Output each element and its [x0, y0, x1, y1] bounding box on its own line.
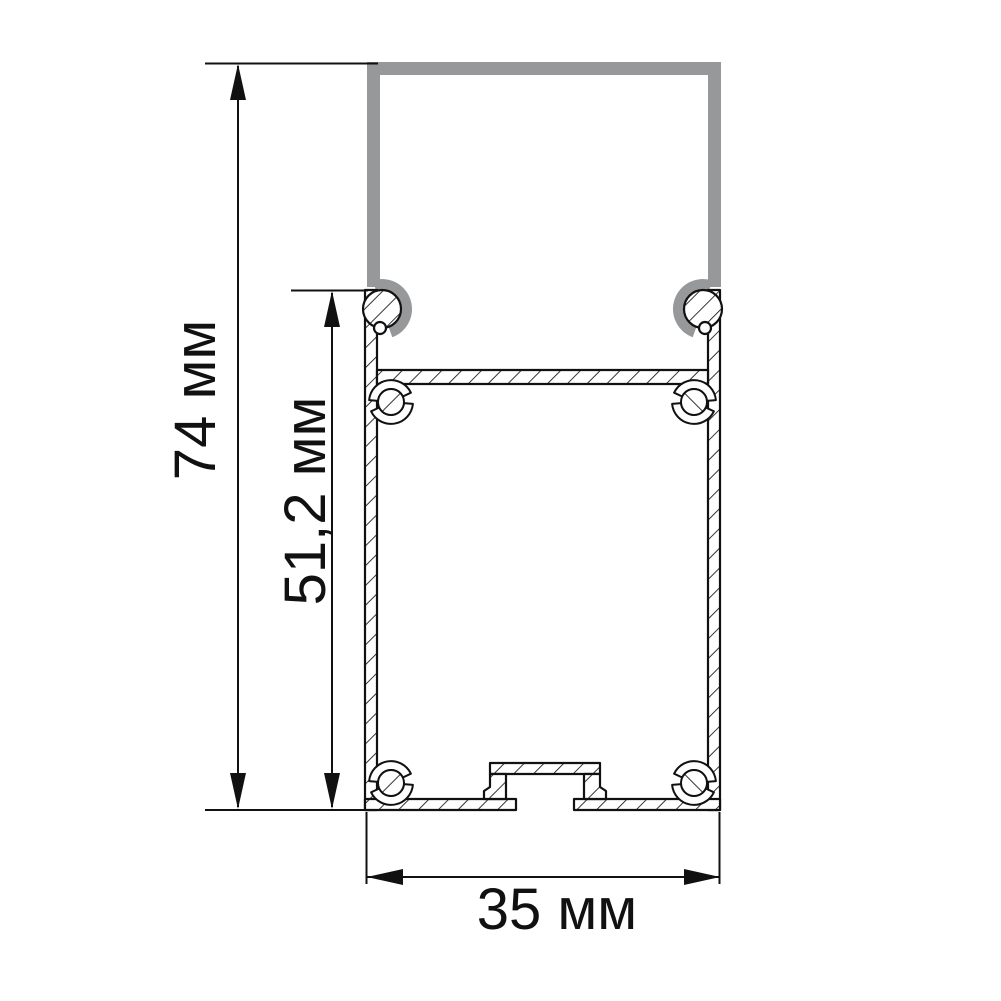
- screw-ports: [369, 380, 716, 805]
- clip-bead-right: [699, 322, 711, 334]
- arrow-down-512: [324, 773, 340, 809]
- dim-label-overall-width: 35 мм: [477, 877, 637, 942]
- arrow-left-35: [367, 869, 403, 885]
- dim-label-overall-height: 74 мм: [163, 320, 228, 480]
- profile-cross-section-drawing: 74 мм 51,2 мм 35 мм: [0, 0, 1001, 1001]
- arrow-right-35: [684, 869, 720, 885]
- profile-right-wall: [708, 290, 720, 810]
- profile-left-wall: [365, 290, 377, 810]
- cover-right-leg: [708, 62, 721, 287]
- mount-channel-right-wall: [584, 774, 606, 799]
- cover-top-bar: [367, 62, 721, 75]
- drawing-canvas: 74 мм 51,2 мм 35 мм: [0, 0, 1001, 1001]
- mount-channel-top: [490, 763, 600, 774]
- arrow-down-74: [230, 773, 246, 809]
- cover-left-leg: [367, 62, 380, 287]
- clip-bead-left: [374, 322, 386, 334]
- profile-body: [363, 290, 722, 810]
- mount-channel-left-wall: [484, 774, 506, 799]
- arrow-up-512: [324, 291, 340, 327]
- led-shelf: [377, 370, 708, 384]
- cover-diffuser: [367, 62, 721, 337]
- arrow-up-74: [230, 64, 246, 100]
- dim-label-body-height: 51,2 мм: [273, 397, 338, 606]
